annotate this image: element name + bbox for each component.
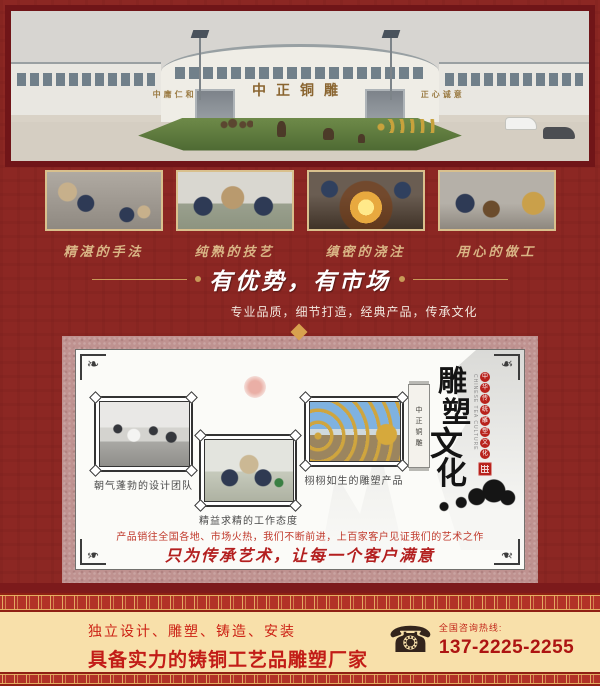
medallion-char: 塑 [480, 427, 490, 437]
vertical-english-label: CHINESE TEA CULTURE [472, 374, 478, 451]
banner-char: 正 [416, 416, 423, 426]
medallion-char: 雕 [480, 416, 490, 426]
panel-photo-caption: 精益求精的工作态度 [199, 512, 297, 527]
medallion-char: 中 [480, 372, 490, 382]
banner-char: 铜 [416, 427, 423, 437]
process-caption: 用心的做工 [438, 241, 556, 260]
title-char: 雕 [438, 366, 470, 397]
telephone-icon: ☎ [388, 618, 433, 662]
page: 中庸仁和 中正铜雕 正心诚意 精湛的手法 纯熟的技艺 缜密的浇注 用心的做工 [0, 0, 600, 686]
process-photo-item: 用心的做工 [438, 170, 556, 260]
title-char: 文 [430, 428, 470, 459]
culture-panel-paper: ❧ ❧ ❧ ❧ 朝气蓬勃的设计团队 [75, 349, 525, 570]
street-lamp-icon [390, 38, 392, 100]
process-photo-item: 精湛的手法 [45, 170, 163, 260]
slogan-section: 有优势，有市场 专业品质，细节打造，经典产品，传承文化 [0, 262, 600, 320]
medallion-column: 中 华 传 统 雕 塑 文 化 [480, 372, 490, 459]
factory-panorama-photo: 中庸仁和 中正铜雕 正心诚意 [5, 5, 595, 167]
culture-panel: ❧ ❧ ❧ ❧ 朝气蓬勃的设计团队 [62, 336, 538, 583]
design-team-photo [99, 401, 190, 467]
panel-description: 产品销往全国各地、市场火热，我们不断前进，上百家客户见证我们的艺术之作 [76, 528, 524, 543]
process-photo-item: 缜密的浇注 [307, 170, 425, 260]
vertical-title-calligraphy: 雕 塑 文 化 [428, 366, 470, 490]
fret-pattern-band [0, 593, 600, 612]
hero-dark-car-shape [543, 127, 575, 139]
street-lamp-icon [199, 38, 201, 100]
process-photo-finishing [438, 170, 556, 231]
red-seal-icon [478, 462, 492, 476]
footer-company-line: 具备实力的铸铜工艺品雕塑厂家 [88, 645, 368, 672]
process-caption: 精湛的手法 [45, 241, 163, 260]
panel-photo-caption: 朝气蓬勃的设计团队 [94, 477, 193, 492]
slogan-subtitle: 专业品质，细节打造，经典产品，传承文化 [54, 303, 600, 320]
panel-photo-item: 栩栩如生的雕塑产品 [304, 396, 404, 487]
hero-deer-statue-shape [358, 134, 365, 143]
corner-flourish-icon: ❧ [492, 352, 522, 382]
medallion-char: 文 [480, 438, 490, 448]
hotline-text-column: 全国咨询热线: 137-2225-2255 [439, 621, 574, 659]
hero-main-windows-shape [175, 67, 425, 79]
process-photo-row: 精湛的手法 纯熟的技艺 缜密的浇注 用心的做工 [0, 170, 600, 260]
ink-cloud-ornament-icon [432, 478, 518, 512]
factory-sign-center: 中正铜雕 [11, 80, 589, 100]
footer-text-block: 独立设计、雕塑、铸造、安装 具备实力的铸铜工艺品雕塑厂家 [88, 621, 368, 672]
dark-divider-strip [0, 583, 600, 593]
footer: 独立设计、雕塑、铸造、安装 具备实力的铸铜工艺品雕塑厂家 ☎ 全国咨询热线: 1… [0, 612, 600, 672]
hero-gold-statues-shape [375, 119, 435, 133]
footer-services-line: 独立设计、雕塑、铸造、安装 [88, 621, 368, 641]
hotline-phone-number: 137-2225-2255 [439, 637, 574, 659]
process-photo-item: 纯熟的技艺 [176, 170, 294, 260]
red-sun-watermark [244, 376, 266, 398]
medallion-char: 统 [480, 405, 490, 415]
ornate-frame [94, 396, 193, 472]
process-caption: 缜密的浇注 [307, 241, 425, 260]
hero-deer-statue-shape [277, 121, 286, 137]
medallion-char: 化 [480, 449, 490, 459]
gold-line-left [92, 279, 187, 280]
vertical-banner: 中 正 铜 雕 [408, 384, 430, 468]
gold-dot-icon [195, 276, 201, 282]
process-photo-casting [307, 170, 425, 231]
factory-sign-right: 正心诚意 [421, 89, 465, 100]
corner-flourish-icon: ❧ [78, 352, 108, 382]
sculpture-products-photo [309, 401, 401, 462]
medallion-char: 传 [480, 394, 490, 404]
ornate-frame [304, 396, 404, 467]
hotline-block: ☎ 全国咨询热线: 137-2225-2255 [388, 618, 574, 662]
gold-line-right [413, 279, 508, 280]
medallion-char: 华 [480, 383, 490, 393]
slogan-heading: 有优势，有市场 [209, 262, 391, 296]
panel-photo-item: 精益求精的工作态度 [199, 434, 297, 527]
gold-dot-icon [399, 276, 405, 282]
hero-statue-group-shape [219, 117, 253, 131]
hero-deer-statue-shape [323, 128, 334, 140]
panel-script-slogan: 只为传承艺术，让每一个客户满意 [76, 542, 524, 566]
hero-white-car-shape [505, 117, 537, 130]
panel-photo-caption: 栩栩如生的雕塑产品 [304, 472, 404, 487]
work-attitude-photo [204, 439, 294, 502]
process-caption: 纯熟的技艺 [176, 241, 294, 260]
process-photo-sculpting [45, 170, 163, 231]
banner-char: 雕 [416, 438, 423, 448]
fret-pattern-band [0, 672, 600, 686]
slogan-heading-row: 有优势，有市场 [0, 262, 600, 296]
process-photo-crafting [176, 170, 294, 231]
hotline-label: 全国咨询热线: [439, 621, 574, 634]
panel-photo-item: 朝气蓬勃的设计团队 [94, 396, 193, 492]
banner-char: 中 [416, 405, 423, 415]
ornate-frame [199, 434, 297, 507]
